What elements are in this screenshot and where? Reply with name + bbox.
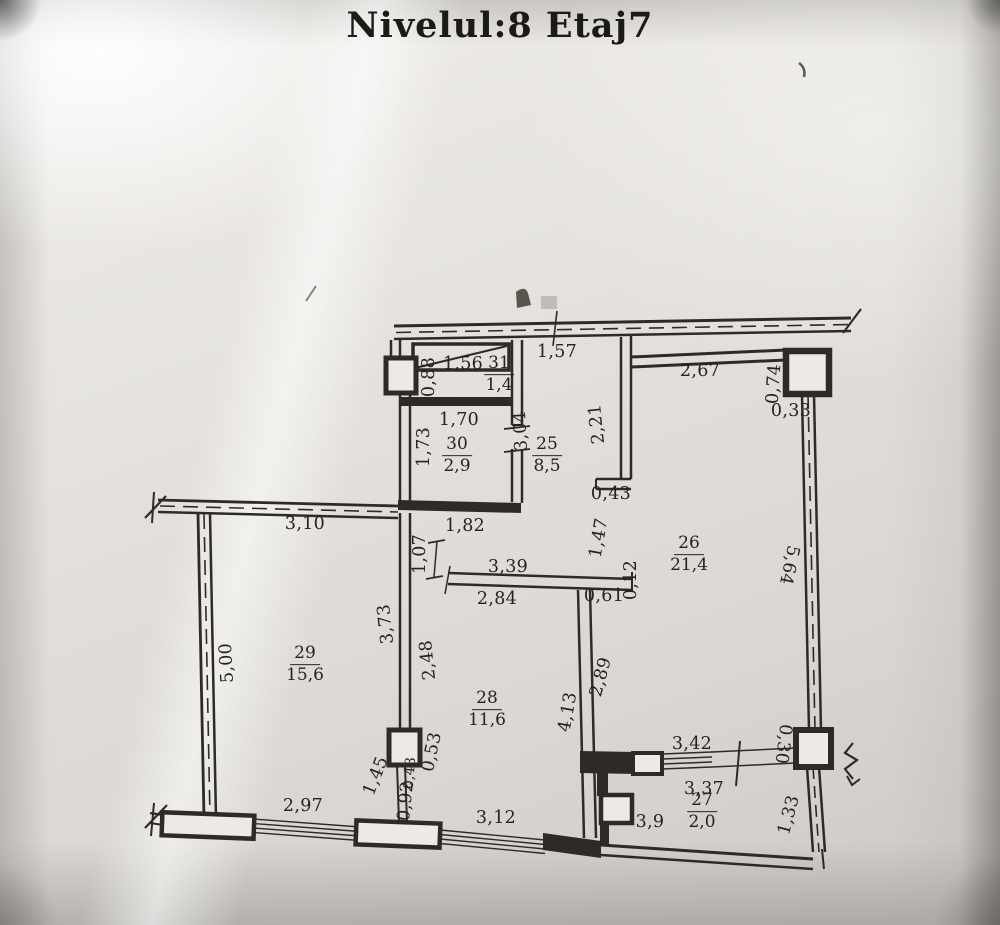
wall-notch [601,795,632,823]
slash-mark [306,286,316,301]
photo-artifacts [306,63,804,309]
ink-smudge [516,289,531,308]
column-bottom-right [796,730,831,767]
floorplan-drawing [0,0,1000,925]
interior-walls [391,336,786,858]
floor-plan-photo: Nivelul:8 Etaj7 [0,0,1000,925]
windows [162,748,796,854]
column-mid-left [389,730,420,765]
dimension-ticks [145,309,861,836]
faded-smudge [541,296,557,309]
break-symbol [845,743,857,779]
pen-mark [799,63,804,77]
column-top-right [786,351,829,394]
column-top-left [386,358,416,393]
